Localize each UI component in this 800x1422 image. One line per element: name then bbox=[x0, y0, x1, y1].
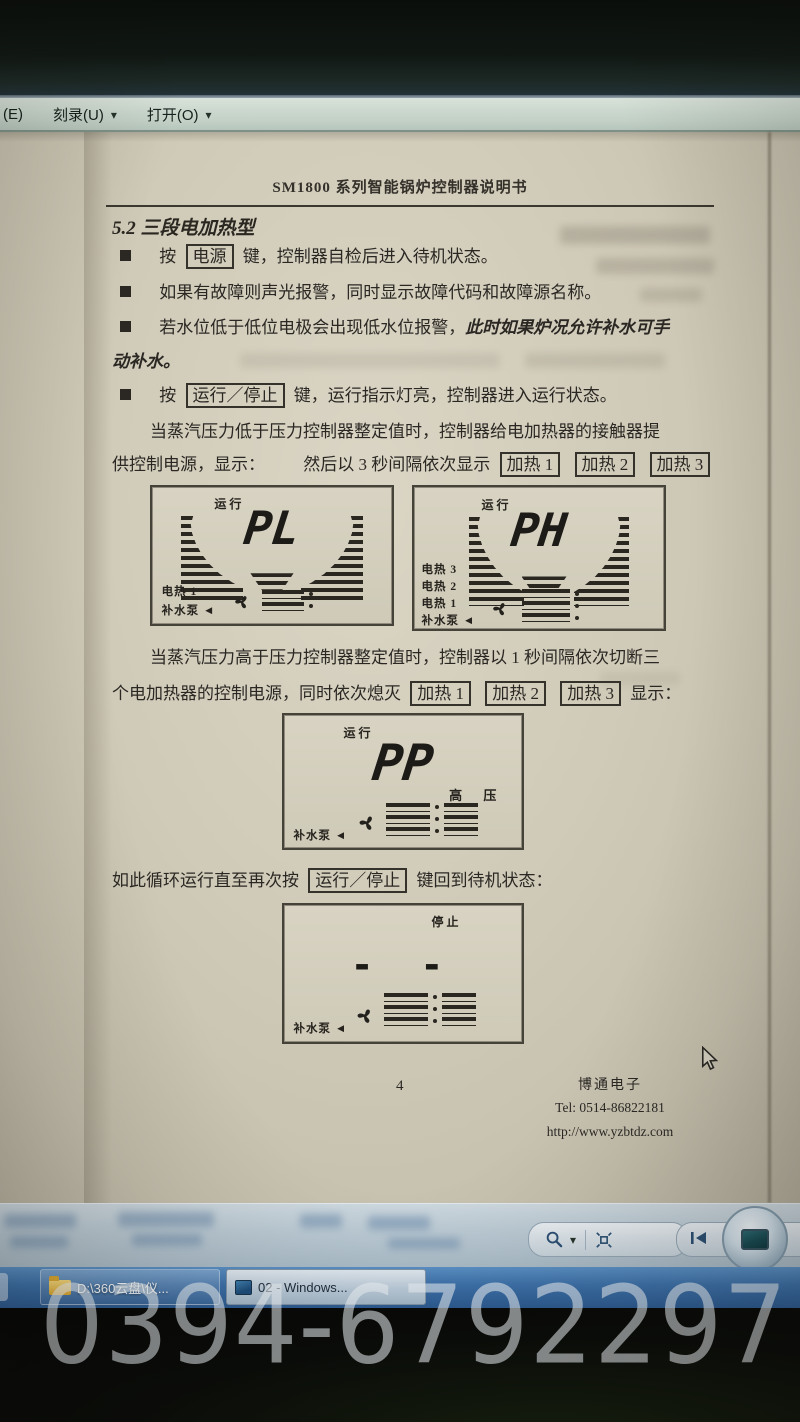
fan-icon bbox=[353, 1004, 377, 1028]
footer-tel: Tel: 0514-86822181 bbox=[505, 1100, 715, 1116]
run-stop-key-label: 运行／停止 bbox=[308, 868, 407, 893]
bullet-low-water: 若水位低于低位电极会出现低水位报警，此时如果炉况允许补水可手 bbox=[120, 313, 669, 338]
heater-dot bbox=[309, 592, 313, 596]
section-title: 5.2 三段电加热型 bbox=[112, 213, 255, 240]
toolbar-smudge bbox=[4, 1214, 76, 1228]
toolbar-smudge bbox=[118, 1212, 214, 1227]
footer-url: http://www.yzbtdz.com bbox=[505, 1124, 715, 1140]
heat3-indicator-label: 加热 3 bbox=[560, 681, 621, 706]
heater-dot bbox=[309, 604, 313, 608]
text-run: 键回到待机状态： bbox=[417, 871, 553, 890]
photographed-monitor: (E) 刻录(U) 打开(O) SM1800 系列智能锅炉控制器说明书 5.2 … bbox=[0, 0, 800, 1422]
heater-segment bbox=[386, 803, 430, 812]
ghost-smudge bbox=[640, 288, 702, 302]
bullet-fault-alarm: 如果有故障则声光报警，同时显示故障代码和故障源名称。 bbox=[120, 278, 601, 303]
text-run: 个电加热器的控制电源，同时依次熄灭 bbox=[112, 684, 401, 703]
heater2-label: 电热 2 bbox=[422, 578, 458, 594]
ghost-smudge bbox=[240, 353, 500, 368]
menu-item-open[interactable]: 打开(O) bbox=[147, 104, 212, 125]
header-rule bbox=[106, 205, 714, 207]
zoom-dropdown-caret-icon[interactable] bbox=[570, 1231, 576, 1249]
high-pressure-label: 高 压 bbox=[449, 785, 505, 804]
pump-label: 补水泵 ◄ bbox=[162, 602, 216, 618]
dropdown-caret-icon bbox=[206, 106, 212, 123]
heater-segment bbox=[384, 1017, 428, 1026]
text-run: 按 bbox=[159, 247, 176, 266]
toolbar-divider bbox=[585, 1230, 586, 1250]
ghost-smudge bbox=[525, 353, 665, 368]
text-run-italic: 此时如果炉况允许补水可手 bbox=[465, 318, 669, 337]
water-level-bars-center bbox=[250, 573, 293, 589]
taskbar-edge-item bbox=[0, 1273, 8, 1301]
menu-item-label: 打开(O) bbox=[147, 104, 199, 125]
heater-dot bbox=[575, 616, 579, 620]
heater-segments bbox=[384, 993, 476, 1026]
dropdown-caret-icon bbox=[111, 106, 117, 123]
para3: 如此循环运行直至再次按 运行／停止 键回到待机状态： bbox=[112, 866, 553, 893]
text-run: 若水位低于低位电极会出现低水位报警， bbox=[159, 318, 465, 337]
watermark-phone-number: 0394-6792297 bbox=[40, 1262, 788, 1388]
bullet-run-stop-key: 按 运行／停止 键，运行指示灯亮，控制器进入运行状态。 bbox=[120, 381, 617, 408]
previous-image-icon[interactable] bbox=[688, 1229, 710, 1247]
lcd-display-ph: 运行 PH 电热 3 电热 2 电热 1 补水泵 ◄ bbox=[412, 485, 666, 631]
heater-dot bbox=[435, 817, 439, 821]
text-run: 如果有故障则声光报警，同时显示故障代码和故障源名称。 bbox=[159, 283, 601, 302]
toolbar-smudge bbox=[300, 1214, 342, 1228]
menu-item-label: 刻录(U) bbox=[53, 104, 104, 125]
fan-icon bbox=[355, 811, 379, 835]
photo-viewer-toolbar bbox=[0, 1203, 800, 1268]
toolbar-smudge bbox=[368, 1216, 430, 1230]
lcd-status-label: 运行 bbox=[214, 495, 244, 512]
ghost-smudge bbox=[560, 226, 710, 244]
text-run: 显示： bbox=[630, 684, 681, 703]
heater-dot bbox=[433, 995, 437, 999]
lcd-status-label: 运行 bbox=[482, 496, 512, 513]
fan-icon bbox=[231, 591, 253, 613]
run-stop-key-label: 运行／停止 bbox=[186, 383, 285, 408]
ghost-smudge bbox=[596, 258, 714, 274]
toolbar-smudge bbox=[132, 1234, 202, 1246]
photo-viewer-menubar: (E) 刻录(U) 打开(O) bbox=[0, 98, 800, 132]
page-crease bbox=[768, 132, 771, 1203]
page-fold-shadow bbox=[84, 132, 112, 1203]
text-run: 键，运行指示灯亮，控制器进入运行状态。 bbox=[294, 386, 617, 405]
heater-segment bbox=[262, 602, 304, 611]
pump-label: 补水泵 ◄ bbox=[422, 612, 476, 628]
zoom-controls-group bbox=[528, 1222, 688, 1257]
text-run: 供控制电源，显示： bbox=[112, 455, 265, 474]
text-run: 如此循环运行直至再次按 bbox=[112, 871, 299, 890]
doc-title: SM1800 系列智能锅炉控制器说明书 bbox=[0, 176, 800, 197]
fan-icon bbox=[489, 598, 511, 620]
heater-segment bbox=[442, 993, 476, 1002]
heater1-label: 电热 1 bbox=[422, 595, 458, 611]
text-run: 按 bbox=[159, 386, 176, 405]
heat1-indicator-label: 加热 1 bbox=[500, 452, 561, 477]
heater-segment bbox=[444, 827, 478, 836]
heater-segment bbox=[262, 590, 304, 599]
heater-segment bbox=[444, 815, 478, 824]
heater-segment bbox=[384, 1005, 428, 1014]
menu-item-email-partial[interactable]: (E) bbox=[3, 106, 23, 123]
heater-segment bbox=[442, 1017, 476, 1026]
power-key-label: 电源 bbox=[186, 244, 234, 269]
heater-dot bbox=[575, 604, 579, 608]
lcd-value: - - bbox=[351, 946, 456, 984]
text-run: 然后以 3 秒间隔依次显示 bbox=[303, 455, 490, 474]
scanned-document-page: SM1800 系列智能锅炉控制器说明书 5.2 三段电加热型 按 电源 键，控制… bbox=[0, 132, 800, 1203]
para1-line1: 当蒸汽压力低于压力控制器整定值时，控制器给电加热器的接触器提 bbox=[150, 417, 660, 442]
heat2-indicator-label: 加热 2 bbox=[575, 452, 636, 477]
heater-segment bbox=[444, 803, 478, 812]
heat2-indicator-label: 加热 2 bbox=[485, 681, 546, 706]
heater-dot bbox=[435, 805, 439, 809]
lcd-value: PP bbox=[370, 738, 436, 788]
lcd-display-pl: 运行 PL 电热 1 补水泵 ◄ bbox=[150, 485, 394, 626]
menu-item-burn[interactable]: 刻录(U) bbox=[53, 104, 117, 125]
para1-line2: 供控制电源，显示： 然后以 3 秒间隔依次显示 加热 1 加热 2 加热 3 bbox=[112, 450, 715, 477]
heater-segments bbox=[522, 589, 579, 622]
heat1-indicator-label: 加热 1 bbox=[410, 681, 471, 706]
toolbar-smudge bbox=[10, 1236, 68, 1248]
para2-line1: 当蒸汽压力高于压力控制器整定值时，控制器以 1 秒间隔依次切断三 bbox=[150, 643, 660, 668]
monitor-bezel-top bbox=[0, 0, 800, 98]
footer-company: 博通电子 bbox=[505, 1074, 715, 1094]
heater-segment bbox=[442, 1005, 476, 1014]
menu-item-label: (E) bbox=[3, 106, 23, 123]
heater3-label: 电热 3 bbox=[422, 561, 458, 577]
toolbar-smudge bbox=[388, 1238, 460, 1249]
lcd-display-pp: 运行 PP 高 压 补水泵 ◄ bbox=[282, 713, 524, 850]
page-number: 4 bbox=[396, 1078, 404, 1095]
heater-segments bbox=[386, 803, 478, 836]
heater-dot bbox=[433, 1019, 437, 1023]
pump-label: 补水泵 ◄ bbox=[294, 827, 348, 843]
bullet-power-key: 按 电源 键，控制器自检后进入待机状态。 bbox=[120, 242, 498, 269]
heater-segment bbox=[384, 993, 428, 1002]
mouse-cursor bbox=[700, 1046, 720, 1072]
lcd-status-label: 停止 bbox=[432, 913, 462, 930]
actual-size-icon[interactable] bbox=[595, 1231, 613, 1249]
para2-line2: 个电加热器的控制电源，同时依次熄灭 加热 1 加热 2 加热 3 显示： bbox=[112, 679, 681, 706]
heater-segment bbox=[522, 613, 570, 622]
heater-segment bbox=[386, 827, 430, 836]
heater1-label: 电热 1 bbox=[162, 583, 198, 599]
lcd-value: PH bbox=[508, 507, 569, 553]
heater-segment bbox=[522, 589, 570, 598]
heater-dot bbox=[435, 829, 439, 833]
lcd-display-standby: 停止 - - 补水泵 ◄ bbox=[282, 903, 524, 1044]
water-level-bars-right bbox=[574, 517, 629, 606]
pump-label: 补水泵 ◄ bbox=[294, 1020, 348, 1036]
slideshow-icon bbox=[741, 1229, 769, 1250]
heat3-indicator-label: 加热 3 bbox=[650, 452, 711, 477]
text-run: 键，控制器自检后进入待机状态。 bbox=[243, 247, 498, 266]
page-edge-shadow bbox=[0, 132, 800, 142]
zoom-icon[interactable] bbox=[545, 1230, 564, 1249]
bullet-low-water-cont: 动补水。 bbox=[112, 347, 180, 372]
heater-segments bbox=[262, 590, 313, 611]
heater-segment bbox=[386, 815, 430, 824]
heater-dot bbox=[575, 592, 579, 596]
lcd-status-label: 运行 bbox=[344, 724, 374, 741]
heater-dot bbox=[433, 1007, 437, 1011]
lcd-value: PL bbox=[241, 505, 302, 551]
heater-segment bbox=[522, 601, 570, 610]
